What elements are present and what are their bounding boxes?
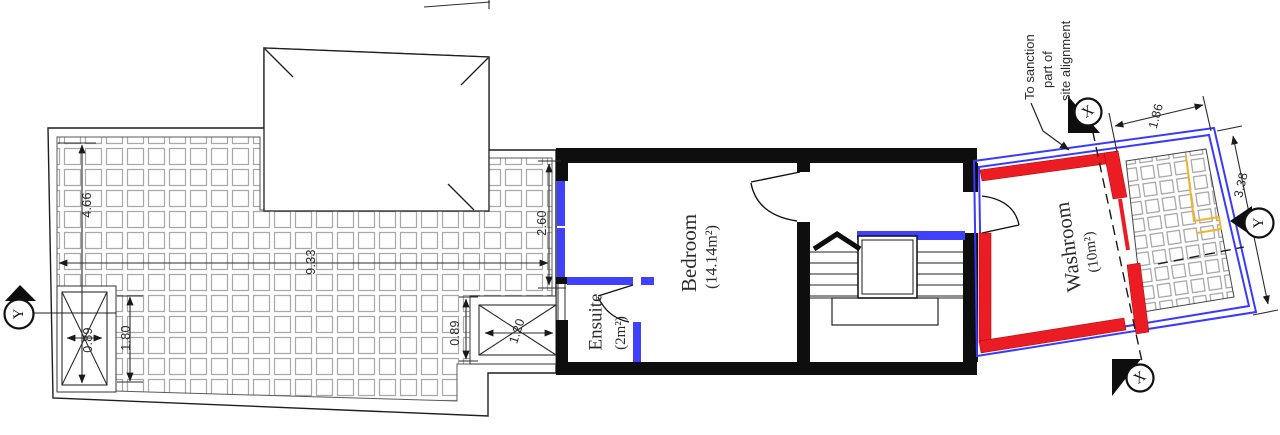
- stair-east-wall-seg: [963, 163, 978, 192]
- dim-terrace-length: 9.33: [304, 249, 318, 275]
- east-wall-seg: [797, 222, 810, 362]
- stair-door-to-washroom: [982, 196, 1019, 233]
- bedroom-door: [751, 172, 800, 221]
- west-wall-seg: [556, 277, 568, 284]
- terrace-left: [48, 0, 556, 416]
- ensuite-area-label: (2m²): [613, 316, 629, 350]
- stair-landing: [832, 298, 938, 325]
- bedroom-window: [557, 181, 565, 226]
- sanction-note: To sanction part of site alignment: [1022, 20, 1073, 150]
- dim-shaft-width: 0.89: [81, 327, 95, 353]
- south-wall: [556, 362, 977, 375]
- dim-rear-terrace-width: 1.86: [1146, 102, 1166, 130]
- bedroom-area-label: (14.14m²): [704, 225, 721, 289]
- washroom-wall-top: [980, 151, 1120, 181]
- washroom-wall-left: [979, 233, 991, 343]
- floor-plan-drawing: Bedroom (14.14m²) Ensuite (2m²): [0, 0, 1280, 435]
- note-line-2: part of: [1040, 51, 1055, 88]
- marker-letter-y: Y: [11, 308, 27, 319]
- stair-well: [858, 236, 917, 298]
- bedroom-label: Bedroom: [677, 214, 701, 292]
- north-wall: [556, 148, 977, 163]
- washroom-partition-thin: [1120, 199, 1128, 250]
- note-line-1: To sanction: [1022, 34, 1037, 100]
- washroom-area-label: (10m²): [1081, 231, 1103, 274]
- ensuite-partition: [641, 277, 654, 285]
- section-marker-y-right: Y: [1230, 206, 1274, 238]
- east-wall-seg: [797, 163, 810, 172]
- dim-terrace-height: 4.66: [80, 192, 94, 218]
- dim-ext: [1109, 113, 1117, 152]
- west-wall-seg: [556, 163, 568, 181]
- dim-ext: [1217, 126, 1242, 131]
- roof-void: [264, 48, 489, 211]
- note-leader-line: [1031, 103, 1069, 150]
- bedroom-window: [557, 228, 565, 277]
- ensuite-partition: [633, 322, 641, 362]
- ensuite-partition: [567, 277, 633, 285]
- edge-lines-top: [424, 0, 490, 9]
- dim-ext: [1203, 96, 1211, 131]
- stair-up-arrow: [814, 234, 860, 249]
- west-wall-seg: [556, 320, 568, 362]
- section-marker-x-bottom: X: [1112, 359, 1154, 396]
- ensuite-vent-window: [558, 284, 565, 320]
- ensuite: Ensuite (2m²): [567, 277, 654, 362]
- ensuite-label: Ensuite: [586, 294, 607, 351]
- dim-shaft-side: 1.80: [119, 325, 133, 351]
- dim-window-width: 2.60: [535, 210, 549, 236]
- note-line-3: site alignment: [1058, 20, 1073, 101]
- washroom-label: Washroom: [1050, 201, 1086, 294]
- dim-planter-height: 0.89: [448, 320, 462, 346]
- dim-rear-terrace-length: 3.38: [1231, 171, 1250, 199]
- marker-letter-y: Y: [1251, 217, 1267, 228]
- washroom-partition-pier-top: [1104, 151, 1127, 199]
- floor-plan-canvas: Bedroom (14.14m²) Ensuite (2m²): [0, 0, 1280, 435]
- bedroom: Bedroom (14.14m²): [557, 172, 800, 292]
- section-marker-x-top: X: [1068, 96, 1102, 133]
